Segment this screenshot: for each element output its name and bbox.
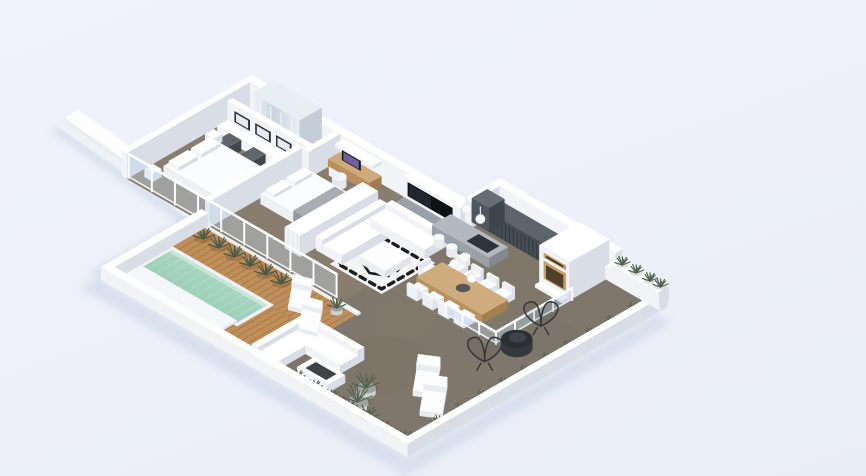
sun-lounger-1-head [416,354,440,373]
bar-stool-1 [433,234,444,248]
sun-lounger-2-head [423,374,447,393]
floor-plan-scene: 3D isometric floor plan rendering of a m… [0,0,866,476]
dining-centerpiece [456,284,471,293]
floor-plan-3d-render [0,0,866,476]
round-table-sheen [509,333,526,343]
